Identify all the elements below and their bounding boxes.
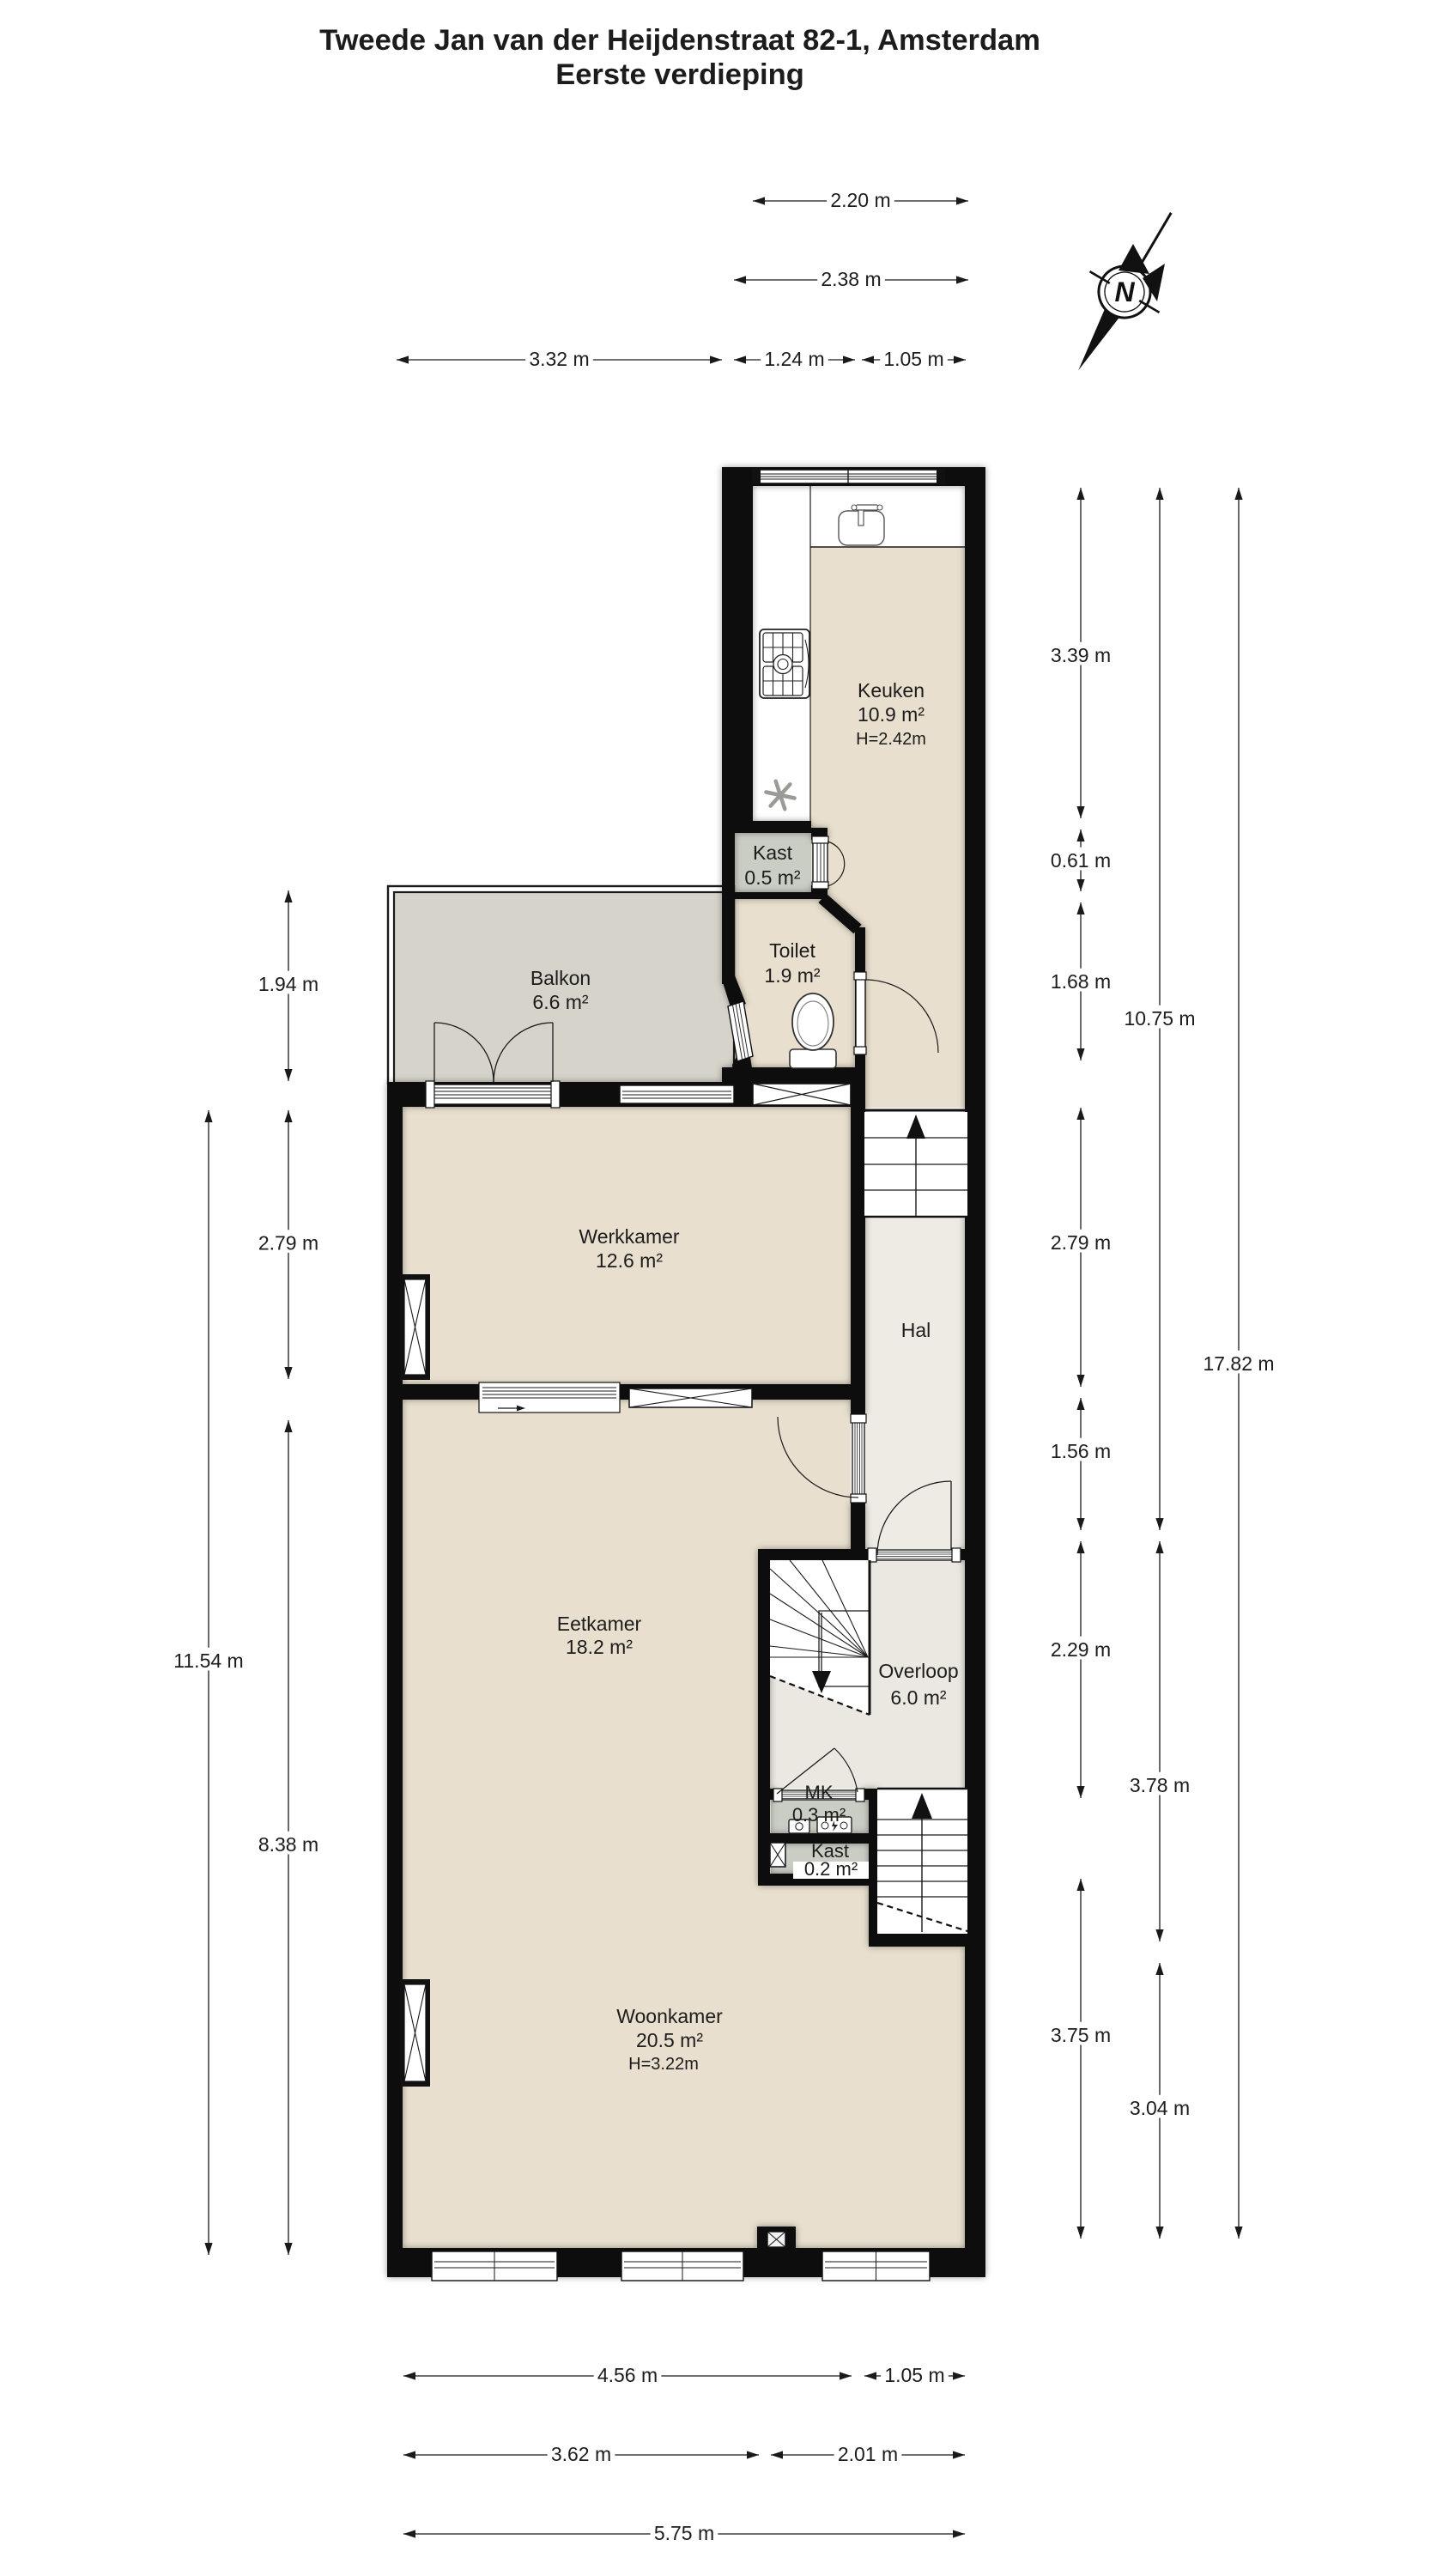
svg-text:1.94 m: 1.94 m xyxy=(258,973,318,995)
svg-text:20.5 m²: 20.5 m² xyxy=(636,2029,703,2051)
svg-text:2.79 m: 2.79 m xyxy=(258,1231,318,1254)
svg-text:6.0 m²: 6.0 m² xyxy=(890,1686,947,1709)
svg-text:17.82 m: 17.82 m xyxy=(1203,1352,1274,1375)
svg-text:18.2 m²: 18.2 m² xyxy=(566,1636,633,1658)
svg-text:1.56 m: 1.56 m xyxy=(1051,1440,1111,1462)
svg-text:2.79 m: 2.79 m xyxy=(1051,1231,1111,1254)
svg-text:12.6 m²: 12.6 m² xyxy=(596,1249,663,1272)
svg-text:11.54 m: 11.54 m xyxy=(173,1649,243,1672)
svg-text:3.39 m: 3.39 m xyxy=(1051,644,1111,666)
svg-text:1.68 m: 1.68 m xyxy=(1051,970,1111,993)
svg-text:Toilet: Toilet xyxy=(769,939,815,962)
svg-text:6.6 m²: 6.6 m² xyxy=(532,991,589,1013)
svg-text:Eetkamer: Eetkamer xyxy=(557,1613,642,1635)
svg-text:3.62 m: 3.62 m xyxy=(551,2443,611,2465)
svg-text:0.61 m: 0.61 m xyxy=(1051,849,1111,872)
svg-text:Keuken: Keuken xyxy=(858,679,925,702)
svg-text:Kast: Kast xyxy=(753,841,793,864)
svg-text:1.05 m: 1.05 m xyxy=(883,348,943,370)
svg-text:2.29 m: 2.29 m xyxy=(1051,1638,1111,1661)
svg-text:0.3 m²: 0.3 m² xyxy=(792,1804,846,1826)
svg-text:3.78 m: 3.78 m xyxy=(1130,1774,1190,1796)
svg-text:Werkkamer: Werkkamer xyxy=(579,1225,679,1248)
svg-text:2.38 m: 2.38 m xyxy=(821,268,881,290)
svg-text:1.05 m: 1.05 m xyxy=(884,2364,944,2386)
svg-text:8.38 m: 8.38 m xyxy=(258,1833,318,1856)
svg-text:3.32 m: 3.32 m xyxy=(529,348,589,370)
svg-text:Tweede Jan van der Heijdenstra: Tweede Jan van der Heijdenstraat 82-1, A… xyxy=(319,24,1040,57)
svg-text:H=3.22m: H=3.22m xyxy=(628,2055,699,2074)
svg-text:2.20 m: 2.20 m xyxy=(830,189,890,211)
svg-text:0.2 m²: 0.2 m² xyxy=(804,1858,858,1880)
svg-text:Eerste verdieping: Eerste verdieping xyxy=(555,58,804,91)
svg-text:4.56 m: 4.56 m xyxy=(597,2364,658,2386)
svg-text:Balkon: Balkon xyxy=(530,967,591,989)
svg-text:H=2.42m: H=2.42m xyxy=(856,730,926,749)
svg-text:3.75 m: 3.75 m xyxy=(1051,2024,1111,2046)
svg-text:5.75 m: 5.75 m xyxy=(654,2522,714,2544)
svg-text:Woonkamer: Woonkamer xyxy=(616,2005,723,2027)
svg-text:MK: MK xyxy=(805,1782,834,1803)
svg-text:Overloop: Overloop xyxy=(878,1660,958,1682)
svg-text:Hal: Hal xyxy=(901,1319,931,1341)
svg-text:1.9 m²: 1.9 m² xyxy=(764,964,821,987)
svg-text:1.24 m: 1.24 m xyxy=(764,348,824,370)
svg-text:10.9 m²: 10.9 m² xyxy=(858,703,925,726)
svg-text:10.75 m: 10.75 m xyxy=(1124,1007,1195,1030)
svg-text:0.5 m²: 0.5 m² xyxy=(744,866,801,889)
svg-text:N: N xyxy=(1114,276,1135,307)
svg-text:3.04 m: 3.04 m xyxy=(1130,2097,1190,2119)
svg-text:2.01 m: 2.01 m xyxy=(838,2443,898,2465)
